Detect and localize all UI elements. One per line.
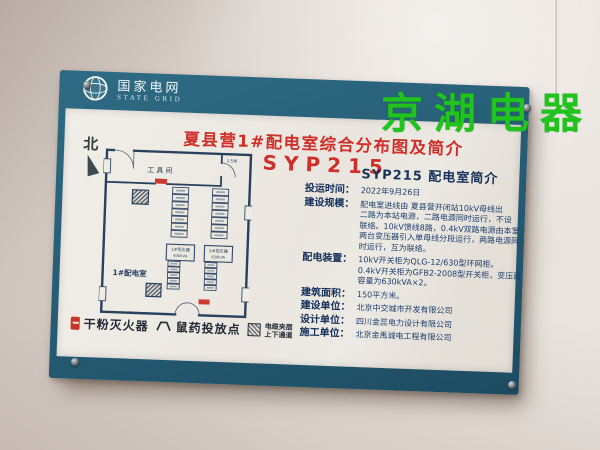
plan-right-jamb-top-icon xyxy=(245,206,254,220)
north-arrow-icon xyxy=(82,153,99,176)
info-value: 150平方米。 xyxy=(357,290,405,302)
rat-poison-icon xyxy=(155,317,172,337)
mounting-screw-top-left xyxy=(83,81,91,89)
plan-cable-duct-1 xyxy=(132,190,149,205)
info-label: 建筑面积： xyxy=(301,287,357,300)
brand-text: 国家电网 STATE GRID xyxy=(117,80,183,104)
plan-dim-label: 2.5米 xyxy=(227,157,238,163)
info-label: 建设规模： xyxy=(304,198,360,211)
fire-extinguisher-icon xyxy=(70,317,79,330)
plan-toolroom-label: 工具间 xyxy=(147,166,174,175)
plan-cabinet-column-upper-right xyxy=(211,189,229,239)
plan-cable-duct-2 xyxy=(146,283,161,297)
plan-cabinet-column-upper-left xyxy=(171,187,189,237)
info-rows: 投运时间： 2022年9月26日 建设规模： 配电室进线由 夏县营开闭站10kV… xyxy=(299,184,517,346)
legend-label: 干粉灭火器 xyxy=(83,315,149,334)
legend-item-rat-poison: 鼠药投放点 xyxy=(155,317,241,339)
plan-right-jamb-bottom-icon xyxy=(242,288,251,302)
legend: 干粉灭火器 鼠药投放点 电缆夹层 上下通道 xyxy=(70,314,293,341)
plan-toolroom-door-icon xyxy=(221,163,236,178)
legend-label: 鼠药投放点 xyxy=(175,318,241,337)
legend-label-line: 上下通道 xyxy=(264,330,292,339)
cable-duct-hatch-icon xyxy=(247,323,260,336)
info-label: 施工单位： xyxy=(299,328,355,341)
info-value: 北京中交城市开发有限公司 xyxy=(356,303,452,317)
north-label: 北 xyxy=(83,133,99,155)
info-label: 投运时间： xyxy=(305,184,361,197)
sign-panel: 夏县营1#配电室综合分布图及简介 SYP215 北 xyxy=(57,108,522,373)
legend-item-extinguisher: 干粉灭火器 xyxy=(70,315,149,335)
info-value: 2022年9月26日 xyxy=(361,186,421,199)
mounting-screw-bottom-left xyxy=(71,358,79,366)
photo-scene: 国家电网 STATE GRID 夏县营1#配电室综合分布图及简介 SYP215 … xyxy=(0,0,600,450)
info-value: 北京金禹诚电工程有限公司 xyxy=(355,330,451,344)
info-value: 四川金蕊电力设计有限公司 xyxy=(356,317,452,331)
plan-transformer-2-sub: 630kVA xyxy=(211,255,225,260)
mounting-screw-bottom-right xyxy=(508,381,516,389)
plan-cabinet-column-lower-left xyxy=(167,261,180,289)
legend-item-cable-duct: 电缆夹层 上下通道 xyxy=(247,322,293,340)
plan-extinguisher-marker-2 xyxy=(199,299,210,304)
legend-label: 电缆夹层 上下通道 xyxy=(264,322,293,339)
info-row-construction-scale: 建设规模： 配电室进线由 夏县营开闭站10kV母线出 二路为本站电源，二路电源同… xyxy=(303,198,517,258)
state-grid-logo-icon xyxy=(82,75,109,106)
plan-bottom-door-icon xyxy=(175,302,199,315)
info-label: 配电装置： xyxy=(302,253,358,266)
plan-extinguisher-marker-1 xyxy=(155,179,167,184)
plan-left-jamb-top-icon xyxy=(103,159,111,173)
info-label: 建设单位： xyxy=(300,301,356,314)
watermark-text: 京湖电器 xyxy=(381,80,593,141)
plan-transformer-1-sub: 630kVA xyxy=(173,254,187,259)
plan-room-label: 1#配电室 xyxy=(112,267,147,278)
floor-plan: 1#变压器 630kVA 2#变压器 630kVA 工具间 2.5米 xyxy=(98,147,254,322)
info-label: 设计单位： xyxy=(300,314,356,327)
plan-top-door-icon xyxy=(115,150,134,169)
info-row-equipment: 配电装置： 10kV开关柜为QLG-12/630型环网柜。 0.4kV开关柜为G… xyxy=(301,253,514,292)
plan-left-jamb-bottom-icon xyxy=(99,287,107,301)
brand-name-en: STATE GRID xyxy=(117,94,183,104)
plan-cabinet-column-lower-right xyxy=(204,262,217,290)
